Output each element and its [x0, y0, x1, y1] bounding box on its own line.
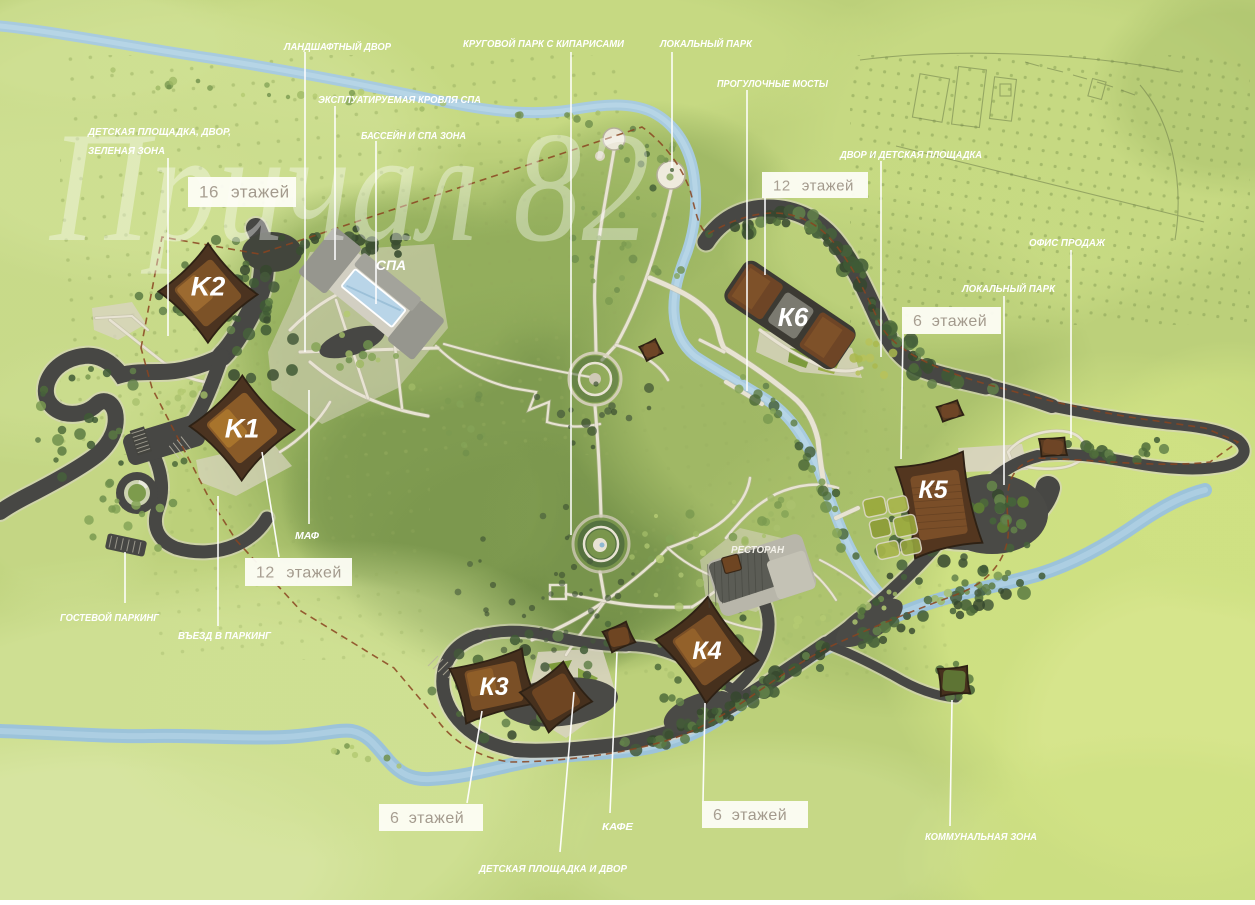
svg-text:КАФЕ: КАФЕ — [602, 821, 634, 833]
svg-text:6: 6 — [913, 313, 922, 330]
svg-text:этажей: этажей — [409, 810, 464, 827]
svg-text:этажей: этажей — [802, 178, 854, 195]
svg-text:этажей: этажей — [732, 807, 787, 824]
svg-text:ОФИС ПРОДАЖ: ОФИС ПРОДАЖ — [1029, 237, 1106, 249]
svg-text:К6: К6 — [778, 302, 809, 332]
svg-text:К4: К4 — [692, 637, 721, 665]
svg-text:ЗЕЛЕНАЯ ЗОНА: ЗЕЛЕНАЯ ЗОНА — [88, 145, 165, 157]
svg-text:К5: К5 — [918, 476, 948, 504]
svg-text:ДЕТСКАЯ ПЛОЩАДКА, ДВОР,: ДЕТСКАЯ ПЛОЩАДКА, ДВОР, — [87, 126, 231, 138]
svg-text:6: 6 — [713, 807, 722, 824]
svg-text:6: 6 — [390, 810, 399, 827]
svg-text:ВЪЕЗД В ПАРКИНГ: ВЪЕЗД В ПАРКИНГ — [178, 630, 271, 642]
svg-text:ПРОГУЛОЧНЫЕ МОСТЫ: ПРОГУЛОЧНЫЕ МОСТЫ — [717, 78, 828, 90]
svg-text:K2: K2 — [191, 272, 226, 302]
svg-text:12: 12 — [773, 178, 791, 195]
svg-text:ДВОР И ДЕТСКАЯ ПЛОЩАДКА: ДВОР И ДЕТСКАЯ ПЛОЩАДКА — [839, 149, 982, 161]
svg-text:ЛОКАЛЬНЫЙ ПАРК: ЛОКАЛЬНЫЙ ПАРК — [961, 282, 1056, 295]
svg-text:ЛАНДШАФТНЫЙ ДВОР: ЛАНДШАФТНЫЙ ДВОР — [283, 40, 392, 53]
svg-text:РЕСТОРАН: РЕСТОРАН — [731, 544, 784, 556]
svg-text:КОММУНАЛЬНАЯ ЗОНА: КОММУНАЛЬНАЯ ЗОНА — [925, 831, 1037, 843]
svg-text:БАССЕЙН И СПА ЗОНА: БАССЕЙН И СПА ЗОНА — [361, 129, 466, 142]
svg-text:16: 16 — [199, 183, 219, 202]
svg-text:К3: К3 — [479, 673, 508, 701]
svg-text:этажей: этажей — [286, 565, 341, 582]
svg-text:ГОСТЕВОЙ ПАРКИНГ: ГОСТЕВОЙ ПАРКИНГ — [60, 611, 159, 624]
svg-text:12: 12 — [256, 565, 275, 582]
svg-text:ЛОКАЛЬНЫЙ ПАРК: ЛОКАЛЬНЫЙ ПАРК — [659, 37, 753, 50]
svg-text:КРУГОВОЙ ПАРК С КИПАРИСАМИ: КРУГОВОЙ ПАРК С КИПАРИСАМИ — [463, 37, 624, 50]
svg-text:ДЕТСКАЯ ПЛОЩАДКА И ДВОР: ДЕТСКАЯ ПЛОЩАДКА И ДВОР — [478, 863, 628, 875]
svg-text:ЭКСПЛУАТИРУЕМАЯ КРОВЛЯ СПА: ЭКСПЛУАТИРУЕМАЯ КРОВЛЯ СПА — [318, 94, 481, 106]
svg-text:этажей: этажей — [932, 313, 987, 330]
svg-text:K1: K1 — [225, 414, 260, 444]
svg-text:МАФ: МАФ — [295, 530, 320, 542]
svg-text:этажей: этажей — [231, 183, 290, 202]
